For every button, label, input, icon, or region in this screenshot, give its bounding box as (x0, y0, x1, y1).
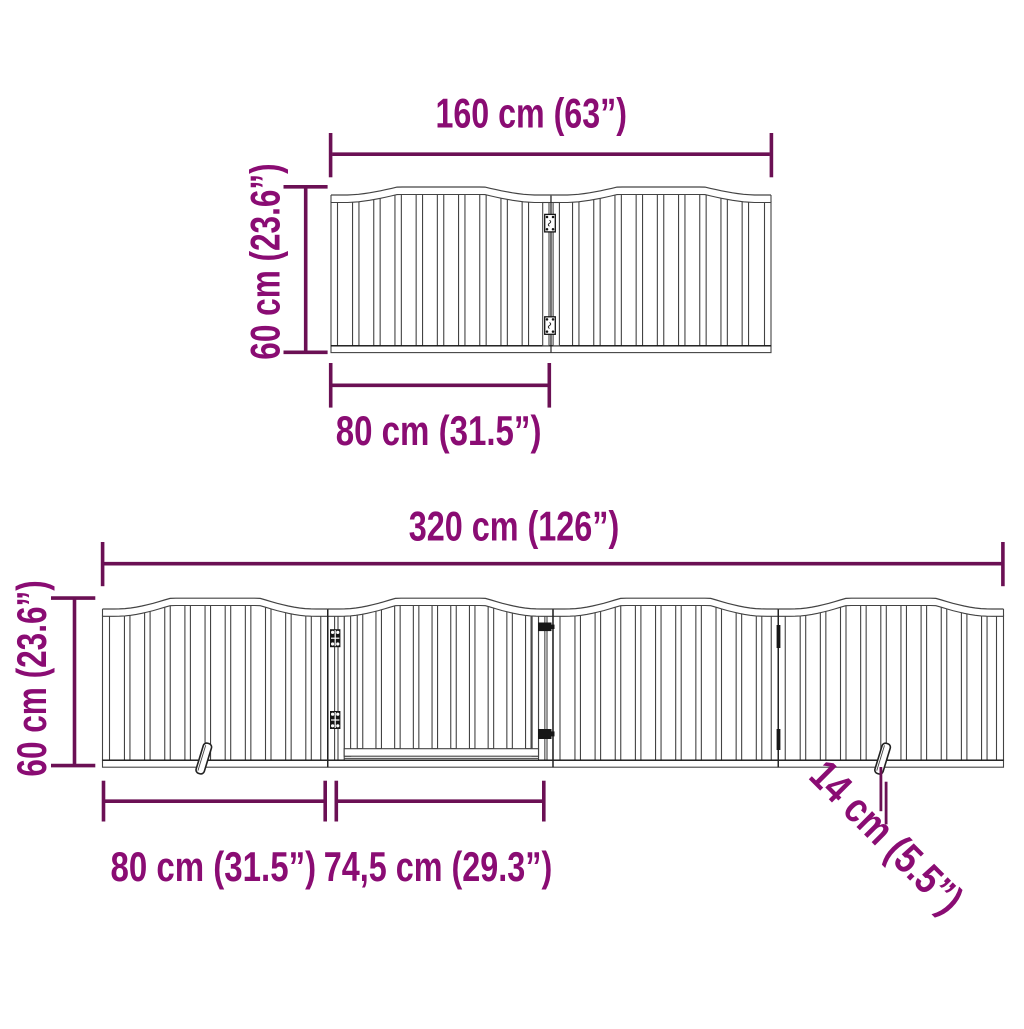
svg-text:60 cm (23.6”): 60 cm (23.6”) (242, 163, 289, 359)
svg-text:320 cm (126”): 320 cm (126”) (409, 502, 620, 549)
svg-text:74,5 cm (29.3”): 74,5 cm (29.3”) (324, 843, 553, 890)
svg-text:160 cm (63”): 160 cm (63”) (435, 90, 627, 137)
svg-text:80 cm (31.5”): 80 cm (31.5”) (110, 843, 316, 890)
svg-text:80 cm (31.5”): 80 cm (31.5”) (336, 407, 542, 454)
svg-text:14 cm (5.5”): 14 cm (5.5”) (801, 751, 973, 923)
svg-text:60 cm (23.6”): 60 cm (23.6”) (8, 580, 55, 776)
